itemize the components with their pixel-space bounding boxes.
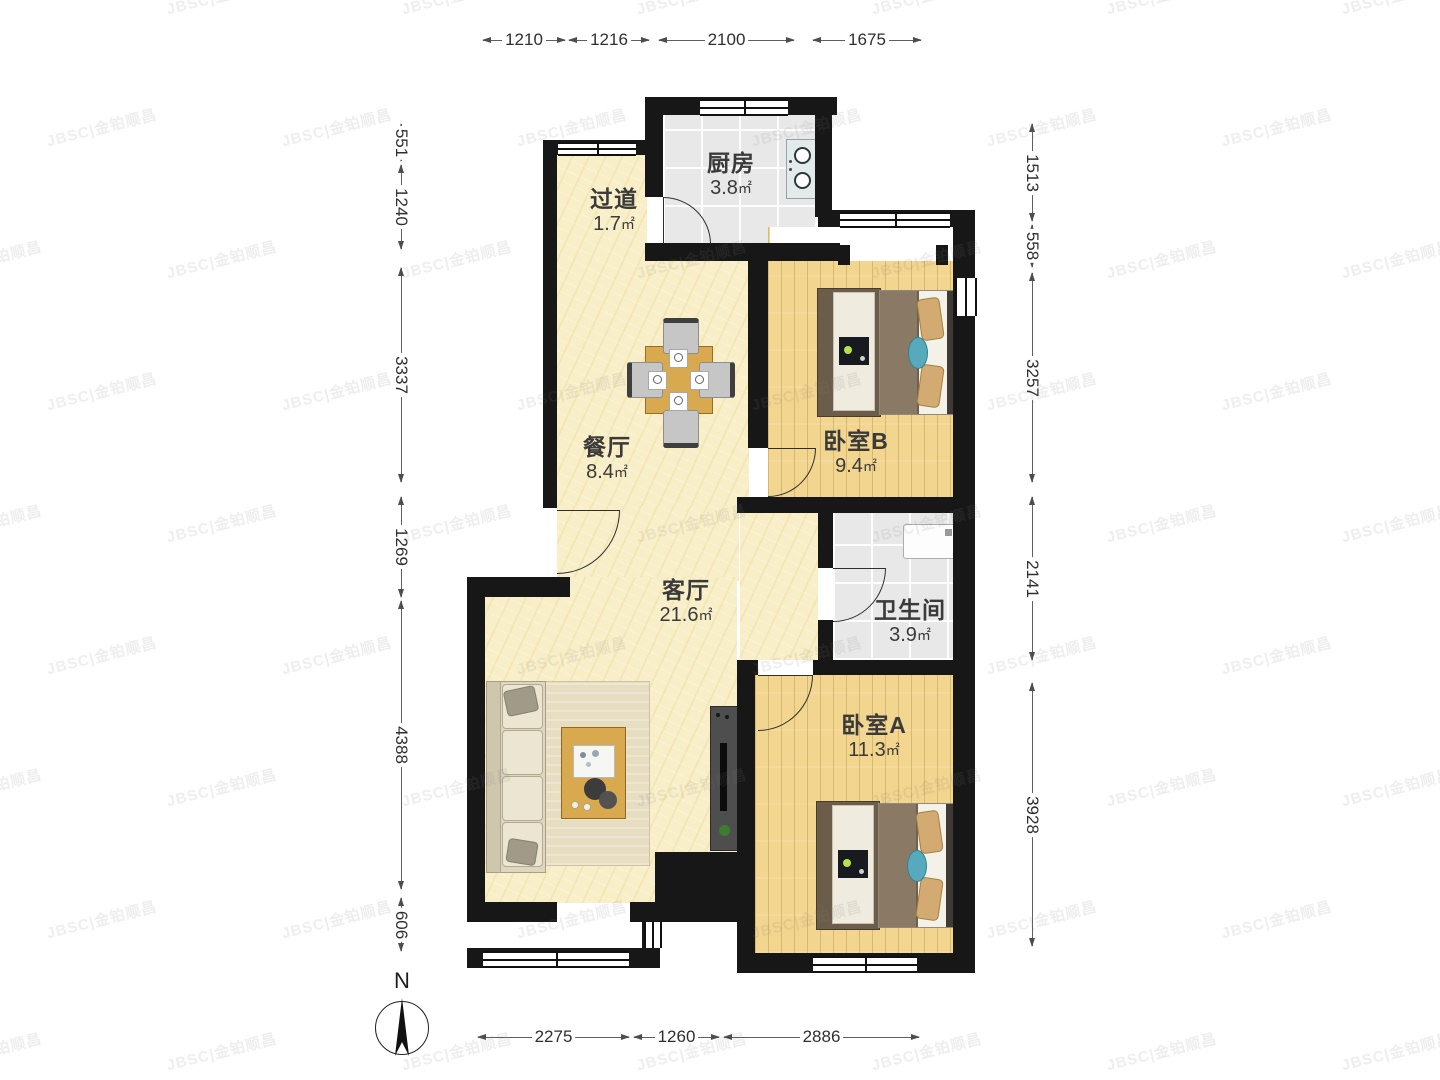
bed-cushion: [907, 850, 927, 882]
dimension-line: [569, 40, 649, 41]
bed-pillow: [916, 297, 945, 342]
bedroom-tv: [838, 850, 868, 878]
bed-cushion: [908, 337, 928, 369]
wall-segment: [543, 140, 557, 508]
window: [483, 951, 629, 968]
dimension-arrow: [621, 1034, 630, 1040]
watermark-text: JBSC|金铂顺昌: [1339, 764, 1440, 812]
watermark-text: JBSC|金铂顺昌: [634, 236, 749, 284]
dimension-label: 4388: [392, 723, 410, 767]
watermark-text: JBSC|金铂顺昌: [164, 764, 279, 812]
compass-icon: [375, 1001, 429, 1055]
room-area: 9.4㎡: [823, 454, 889, 478]
bedroom-b-floor: [768, 227, 953, 499]
watermark-text: JBSC|金铂顺昌: [1339, 500, 1440, 548]
window-mullion: [895, 214, 897, 226]
dining-table: [645, 346, 713, 414]
dimension-line: [401, 601, 402, 889]
watermark-text: JBSC|金铂顺昌: [0, 1028, 44, 1076]
watermark-text: JBSC|金铂顺昌: [44, 104, 159, 152]
bed-blanket: [880, 291, 919, 414]
window: [700, 99, 788, 116]
dimension-arrow: [1029, 123, 1035, 132]
dimension-label: 3257: [1023, 356, 1041, 400]
tv-knob: [859, 869, 864, 874]
room-label-hallway: 过道1.7㎡: [590, 186, 638, 236]
wall-segment: [737, 660, 758, 675]
area-unit: ㎡: [738, 180, 752, 196]
washing-machine: [903, 524, 957, 559]
wall-segment: [818, 620, 833, 662]
dimension-arrow: [1029, 272, 1035, 281]
wall-segment: [818, 210, 975, 227]
dimension-line: [813, 40, 921, 41]
wall-segment: [737, 497, 975, 513]
wall-segment: [815, 97, 832, 217]
dining-chair-right: [699, 362, 735, 398]
compass-north-label: N: [374, 968, 430, 994]
bed-blanket: [879, 804, 918, 927]
coffee-table: [561, 727, 626, 819]
bed-pillow: [915, 810, 944, 855]
wall-segment: [748, 261, 768, 448]
dimension-arrow: [1029, 652, 1035, 661]
compass: N: [374, 968, 430, 1062]
dimension-label: 3928: [1023, 793, 1041, 837]
decor-sphere: [599, 791, 617, 809]
watermark-text: JBSC|金铂顺昌: [44, 896, 159, 944]
room-label-bathroom: 卫生间3.9㎡: [874, 597, 946, 647]
hallway-floor: [557, 152, 647, 264]
watermark-text: JBSC|金铂顺昌: [869, 500, 984, 548]
watermark-text: JBSC|金铂顺昌: [634, 764, 749, 812]
watermark-text: JBSC|金铂顺昌: [749, 104, 864, 152]
bedroom-tv: [839, 337, 869, 365]
dimension-line: [1032, 273, 1033, 482]
dimension-label: 1675: [845, 31, 889, 49]
watermark-text: JBSC|金铂顺昌: [869, 236, 984, 284]
tray-item: [592, 750, 599, 757]
cup: [571, 801, 579, 809]
dimension: 1675: [812, 31, 922, 49]
dimension-label: 1513: [1023, 151, 1041, 195]
watermark-text: JBSC|金铂顺昌: [44, 632, 159, 680]
dimension-label: 2275: [532, 1028, 576, 1046]
room-area: 21.6㎡: [660, 603, 713, 627]
room-label-layer: 厨房3.8㎡过道1.7㎡餐厅8.4㎡卧室B9.4㎡客厅21.6㎡卫生间3.9㎡卧…: [0, 0, 1440, 1080]
wall-segment: [467, 577, 485, 922]
tv-knob: [860, 356, 865, 361]
room-name: 卫生间: [874, 597, 946, 623]
dimension-label: 606: [392, 907, 410, 941]
dimension-label: 1260: [655, 1028, 699, 1046]
floorplan-canvas: 厨房3.8㎡过道1.7㎡餐厅8.4㎡卧室B9.4㎡客厅21.6㎡卫生间3.9㎡卧…: [0, 0, 1440, 1080]
cup: [583, 803, 591, 811]
dimension-label: 558: [1023, 229, 1041, 263]
stove-knob: [789, 160, 792, 163]
room-area: 11.3㎡: [841, 738, 907, 762]
dimension: 2100: [658, 31, 795, 49]
room-name: 餐厅: [583, 434, 631, 460]
dimension-line: [401, 497, 402, 597]
watermark-text: JBSC|金铂顺昌: [1219, 896, 1334, 944]
dimension: 606: [392, 897, 410, 952]
watermark-text: JBSC|金铂顺昌: [0, 500, 44, 548]
wall-segment: [818, 510, 833, 568]
tv-cabinet: [710, 706, 739, 851]
watermark-text: JBSC|金铂顺昌: [984, 632, 1099, 680]
watermark-text: JBSC|金铂顺昌: [1104, 764, 1219, 812]
watermark-text: JBSC|金铂顺昌: [399, 236, 514, 284]
tv-light: [843, 859, 851, 867]
living-floor-upper: [557, 506, 739, 581]
room-area: 8.4㎡: [583, 460, 631, 484]
dimension: 3928: [1023, 682, 1041, 947]
bedroom-a-floor: [755, 675, 953, 953]
dining-chair-bottom: [663, 410, 699, 448]
dimension-arrow: [1029, 474, 1035, 483]
watermark-text: JBSC|金铂顺昌: [279, 368, 394, 416]
wall-segment: [838, 245, 850, 265]
area-unit: ㎡: [863, 458, 877, 474]
window-mullion: [556, 953, 558, 966]
bed-pillow: [916, 364, 945, 409]
place-setting: [669, 392, 688, 411]
dimension-arrow: [398, 881, 404, 890]
dimension-arrow: [398, 897, 404, 906]
window-mullion: [597, 144, 599, 154]
dimension-arrow: [398, 943, 404, 952]
living-floor-main: [485, 577, 737, 903]
room-name: 厨房: [707, 150, 755, 176]
dimension-line: [1032, 497, 1033, 660]
room-name: 卧室B: [823, 428, 889, 454]
sofa-cushion: [502, 730, 543, 775]
dining-chair-left: [627, 362, 663, 398]
dimension-arrow: [398, 164, 404, 173]
dimension-line: [401, 165, 402, 249]
dimension-arrow: [568, 37, 577, 43]
wall-segment: [953, 210, 975, 973]
dimension: 2275: [477, 1028, 630, 1046]
dimension: 1216: [568, 31, 650, 49]
place-setting: [648, 371, 667, 390]
dimension: 3257: [1023, 272, 1041, 483]
dimension-arrow: [1029, 938, 1035, 947]
dimension-layer: 1210121621001675227512602886551124033371…: [0, 0, 1440, 1080]
sofa-cushion: [502, 776, 543, 821]
dimension-arrow: [658, 37, 667, 43]
sofa-cushion: [502, 684, 543, 729]
wall-segment: [936, 245, 948, 265]
floor-layer: [0, 0, 1440, 1080]
plant: [719, 825, 730, 836]
dimension-arrow: [1029, 224, 1035, 233]
dimension: 1260: [633, 1028, 720, 1046]
dimension-arrow: [1029, 682, 1035, 691]
furniture-layer: [0, 0, 1440, 1080]
room-area: 3.9㎡: [874, 623, 946, 647]
watermark-text: JBSC|金铂顺昌: [984, 104, 1099, 152]
dimension: 1210: [482, 31, 566, 49]
window: [955, 278, 977, 316]
watermark-text: JBSC|金铂顺昌: [1339, 0, 1440, 19]
north-arrow-icon: [391, 998, 413, 1056]
area-unit: ㎡: [621, 216, 635, 232]
watermark-text: JBSC|金铂顺昌: [1219, 104, 1334, 152]
dimension-line: [634, 1037, 719, 1038]
dimension-label: 1210: [502, 31, 546, 49]
dimension-line: [1032, 683, 1033, 946]
dimension-arrow: [482, 37, 491, 43]
dimension-label: 3337: [392, 353, 410, 397]
area-unit: ㎡: [886, 742, 900, 758]
dimension: 558: [1023, 224, 1041, 268]
dimension-arrow: [398, 241, 404, 250]
watermark-text: JBSC|金铂顺昌: [869, 764, 984, 812]
bed-mattress: [878, 803, 955, 928]
dimension-line: [483, 40, 565, 41]
watermark-text: JBSC|金铂顺昌: [634, 500, 749, 548]
sofa-cushion: [502, 822, 543, 867]
watermark-text: JBSC|金铂顺昌: [164, 0, 279, 19]
wall-segment: [813, 660, 975, 675]
burner: [794, 172, 811, 189]
cabinet-knob: [716, 713, 720, 717]
dimension: 2886: [723, 1028, 920, 1046]
watermark-text: JBSC|金铂顺昌: [164, 236, 279, 284]
watermark-text: JBSC|金铂顺昌: [514, 104, 629, 152]
headboard: [946, 804, 954, 927]
watermark-layer: JBSC|金铂顺昌JBSC|金铂顺昌JBSC|金铂顺昌JBSC|金铂顺昌JBSC…: [0, 0, 1440, 1080]
window: [644, 922, 662, 948]
wall-segment: [645, 97, 663, 197]
cabinet-knob: [725, 715, 729, 719]
watermark-text: JBSC|金铂顺昌: [1219, 368, 1334, 416]
wall-segment: [467, 948, 660, 968]
dimension-arrow: [913, 37, 922, 43]
dimension: 1513: [1023, 123, 1041, 222]
tray-item: [586, 762, 591, 767]
dimension-line: [1032, 225, 1033, 267]
window: [558, 142, 636, 156]
dimension-label: 2886: [800, 1028, 844, 1046]
dimension-label: 1240: [392, 185, 410, 229]
living-rug: [512, 681, 650, 866]
kitchen-floor: [663, 115, 815, 245]
bed-pillow: [915, 877, 944, 922]
watermark-text: JBSC|金铂顺昌: [1104, 1028, 1219, 1076]
dimension: 2141: [1023, 496, 1041, 661]
dimension-line: [659, 40, 794, 41]
bedroom-b-window-sill: [770, 227, 953, 261]
room-name: 卧室A: [841, 712, 907, 738]
dimension: 3337: [392, 267, 410, 483]
dimension-label: 1269: [392, 525, 410, 569]
window: [813, 956, 917, 973]
dining-floor: [557, 259, 749, 509]
dimension-arrow: [1029, 496, 1035, 505]
dimension-line: [401, 268, 402, 482]
entry-door: [557, 510, 620, 574]
watermark-text: JBSC|金铂顺昌: [1104, 500, 1219, 548]
place-setting: [690, 371, 709, 390]
dimension-arrow: [1029, 213, 1035, 222]
watermark-text: JBSC|金铂顺昌: [399, 500, 514, 548]
sofa-back: [487, 682, 501, 872]
dimension-arrow: [477, 1034, 486, 1040]
dimension-arrow: [398, 600, 404, 609]
dimension-arrow: [786, 37, 795, 43]
wall-segment: [645, 243, 840, 261]
dimension-label: 2100: [705, 31, 749, 49]
washer-control: [945, 529, 952, 536]
dimension-arrow: [557, 37, 566, 43]
dining-chair-top: [663, 318, 699, 354]
watermark-text: JBSC|金铂顺昌: [399, 764, 514, 812]
dimension-line: [1032, 124, 1033, 221]
dimension: 1240: [392, 164, 410, 250]
dimension-arrow: [1029, 259, 1035, 268]
bedroom-a-door: [758, 675, 813, 731]
bed-bedroom-a: [816, 801, 954, 928]
room-area: 3.8㎡: [707, 176, 755, 200]
window-mullion: [744, 101, 746, 114]
decor-sphere: [584, 778, 606, 800]
watermark-text: JBSC|金铂顺昌: [1104, 0, 1219, 19]
watermark-text: JBSC|金铂顺昌: [869, 0, 984, 19]
dimension-line: [478, 1037, 629, 1038]
dimension-arrow: [398, 474, 404, 483]
watermark-text: JBSC|金铂顺昌: [0, 0, 44, 19]
living-floor-strip: [740, 513, 818, 660]
wall-segment: [467, 902, 557, 922]
watermark-text: JBSC|金铂顺昌: [984, 896, 1099, 944]
wall-segment: [645, 97, 837, 115]
tv-screen: [720, 743, 727, 811]
tray-item: [580, 752, 586, 758]
watermark-text: JBSC|金铂顺昌: [164, 1028, 279, 1076]
dimension-arrow: [398, 267, 404, 276]
watermark-text: JBSC|金铂顺昌: [514, 632, 629, 680]
dimension-arrow: [723, 1034, 732, 1040]
wall-segment: [467, 577, 570, 597]
dimension-label: 1216: [587, 31, 631, 49]
bathroom-floor: [833, 510, 953, 660]
tv-light: [844, 346, 852, 354]
wall-segment: [642, 920, 660, 950]
room-label-bedroom-b: 卧室B9.4㎡: [823, 428, 889, 478]
watermark-text: JBSC|金铂顺昌: [749, 632, 864, 680]
watermark-text: JBSC|金铂顺昌: [1339, 1028, 1440, 1076]
room-label-kitchen: 厨房3.8㎡: [707, 150, 755, 200]
room-name: 客厅: [660, 577, 713, 603]
watermark-text: JBSC|金铂顺昌: [279, 104, 394, 152]
wall-segment: [543, 140, 657, 155]
bathroom-door: [833, 568, 886, 622]
dimension-arrow: [711, 1034, 720, 1040]
dimension-arrow: [633, 1034, 642, 1040]
dimension: 1269: [392, 496, 410, 598]
watermark-text: JBSC|金铂顺昌: [279, 632, 394, 680]
wall-segment: [737, 660, 755, 973]
wall-layer: [0, 0, 1440, 1080]
dimension-line: [401, 124, 402, 161]
stove: [786, 139, 819, 199]
dimension-line: [724, 1037, 919, 1038]
watermark-text: JBSC|金铂顺昌: [749, 368, 864, 416]
wardrobe: [817, 288, 881, 417]
watermark-text: JBSC|金铂顺昌: [514, 368, 629, 416]
watermark-text: JBSC|金铂顺昌: [749, 896, 864, 944]
wall-segment: [655, 852, 737, 922]
window-mullion: [865, 958, 867, 971]
room-name: 过道: [590, 186, 638, 212]
area-unit: ㎡: [917, 627, 931, 643]
dimension: 551: [392, 123, 410, 162]
dimension-arrow: [911, 1034, 920, 1040]
watermark-text: JBSC|金铂顺昌: [1339, 236, 1440, 284]
watermark-text: JBSC|金铂顺昌: [164, 500, 279, 548]
dimension-arrow: [641, 37, 650, 43]
dimension-arrow: [398, 153, 404, 162]
place-setting: [669, 349, 688, 368]
watermark-text: JBSC|金铂顺昌: [869, 1028, 984, 1076]
sofa-pillow: [505, 838, 538, 866]
wardrobe: [816, 801, 880, 930]
watermark-text: JBSC|金铂顺昌: [0, 764, 44, 812]
window: [840, 212, 950, 228]
watermark-text: JBSC|金铂顺昌: [514, 896, 629, 944]
watermark-text: JBSC|金铂顺昌: [0, 236, 44, 284]
tv-stand: [832, 805, 874, 924]
room-label-bedroom-a: 卧室A11.3㎡: [841, 712, 907, 762]
dimension-line: [401, 898, 402, 951]
room-area: 1.7㎡: [590, 212, 638, 236]
dimension: 4388: [392, 600, 410, 890]
watermark-text: JBSC|金铂顺昌: [984, 368, 1099, 416]
coffee-table-tray: [573, 745, 615, 778]
area-unit: ㎡: [614, 464, 628, 480]
headboard: [947, 291, 955, 414]
wall-segment: [630, 902, 660, 922]
watermark-text: JBSC|金铂顺昌: [1104, 236, 1219, 284]
dimension-label: 2141: [1023, 557, 1041, 601]
room-label-dining: 餐厅8.4㎡: [583, 434, 631, 484]
sofa: [486, 681, 546, 873]
watermark-text: JBSC|金铂顺昌: [1219, 632, 1334, 680]
dimension-arrow: [398, 123, 404, 132]
burner: [794, 147, 811, 164]
sofa-pillow: [503, 685, 540, 717]
bed-bedroom-b: [817, 288, 955, 415]
wall-segment: [737, 953, 975, 973]
watermark-text: JBSC|金铂顺昌: [634, 0, 749, 19]
watermark-text: JBSC|金铂顺昌: [44, 368, 159, 416]
area-unit: ㎡: [698, 607, 712, 623]
room-label-living: 客厅21.6㎡: [660, 577, 713, 627]
dimension-label: 551: [392, 125, 410, 159]
watermark-text: JBSC|金铂顺昌: [399, 0, 514, 19]
dimension-arrow: [398, 589, 404, 598]
dimension-arrow: [398, 496, 404, 505]
bed-mattress: [879, 290, 956, 415]
watermark-text: JBSC|金铂顺昌: [634, 1028, 749, 1076]
stove-knob: [789, 168, 792, 171]
kitchen-door: [663, 197, 711, 244]
tv-stand: [833, 292, 875, 411]
dimension-arrow: [812, 37, 821, 43]
